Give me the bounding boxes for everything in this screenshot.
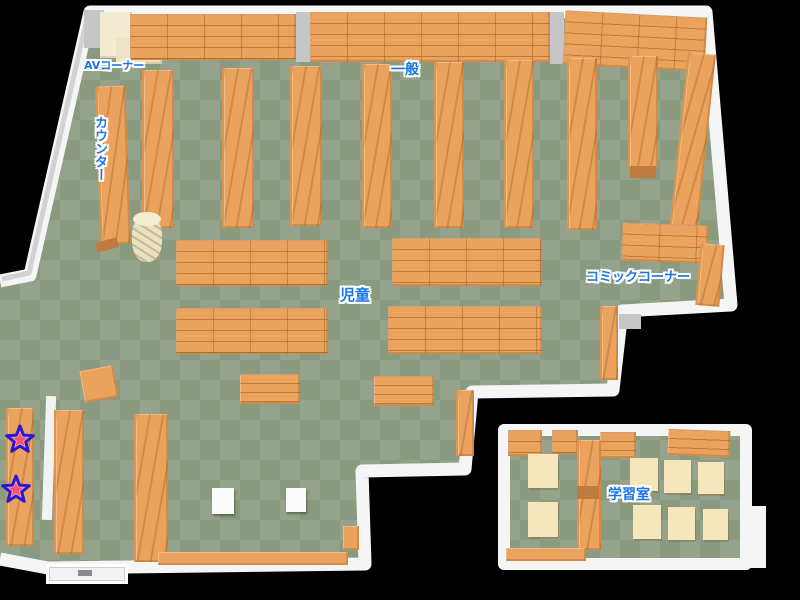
label-comic-corner: コミックコーナー: [586, 266, 690, 285]
low-bookshelf: [392, 238, 542, 286]
wall-bookshelf-bank: [310, 12, 550, 62]
wall-bookshelf-bank: [130, 14, 296, 60]
small-shelf: [343, 526, 359, 550]
study-table: [633, 505, 661, 539]
bookshelf-row: [142, 70, 174, 228]
study-table: [664, 460, 691, 493]
bookshelf-row: [134, 414, 168, 562]
study-table: [528, 454, 558, 488]
bookshelf-row: [290, 66, 322, 226]
bottom-wall-shelf: [158, 552, 348, 565]
wall-pillar: [550, 12, 564, 64]
study-table: [528, 502, 558, 537]
divider-notch: [577, 486, 599, 499]
bookshelf-row: [222, 68, 254, 228]
low-bookshelf: [388, 306, 542, 354]
study-table: [668, 507, 695, 540]
low-bookshelf: [176, 240, 328, 286]
bookshelf-row: [54, 410, 84, 554]
label-av-corner: AVコーナー: [84, 57, 144, 73]
door-handle: [78, 570, 92, 576]
low-bookshelf: [176, 308, 328, 354]
bookshelf-row: [504, 60, 534, 228]
picture-book-bin: [374, 376, 434, 406]
bookshelf-row: [628, 56, 658, 168]
star-marker-icon[interactable]: [0, 474, 32, 506]
label-counter: カウンター: [90, 116, 109, 181]
study-table: [698, 462, 724, 494]
kiosk-table: [212, 488, 234, 514]
study-shelf: [600, 432, 636, 458]
study-room-wall-thick: [744, 506, 766, 568]
study-shelf: [508, 430, 542, 456]
reading-table: [79, 365, 118, 402]
comic-shelf: [621, 223, 708, 264]
spiral-rack-top: [133, 212, 161, 226]
wall-pillar: [296, 12, 310, 62]
kiosk-table: [286, 488, 306, 512]
bookshelf-row: [362, 64, 392, 228]
study-wall-shelf: [506, 548, 586, 561]
study-shelf: [552, 430, 578, 454]
study-table: [703, 509, 728, 540]
label-general: 一般: [391, 59, 419, 79]
label-children: 児童: [340, 284, 370, 305]
bookshelf-row: [434, 62, 464, 228]
comic-wall-shelf: [600, 306, 618, 380]
wall-block: [619, 314, 641, 329]
picture-book-bin: [240, 374, 300, 404]
bookshelf-row: [567, 58, 597, 230]
star-marker-icon[interactable]: [4, 424, 36, 456]
library-map: AVコーナー カウンター 一般 児童 コミックコーナー 学習室: [0, 0, 800, 600]
bookshelf-end-cap: [630, 166, 656, 178]
wall-shelf: [456, 390, 474, 456]
study-shelf: [668, 429, 731, 457]
label-study-room: 学習室: [608, 484, 650, 504]
